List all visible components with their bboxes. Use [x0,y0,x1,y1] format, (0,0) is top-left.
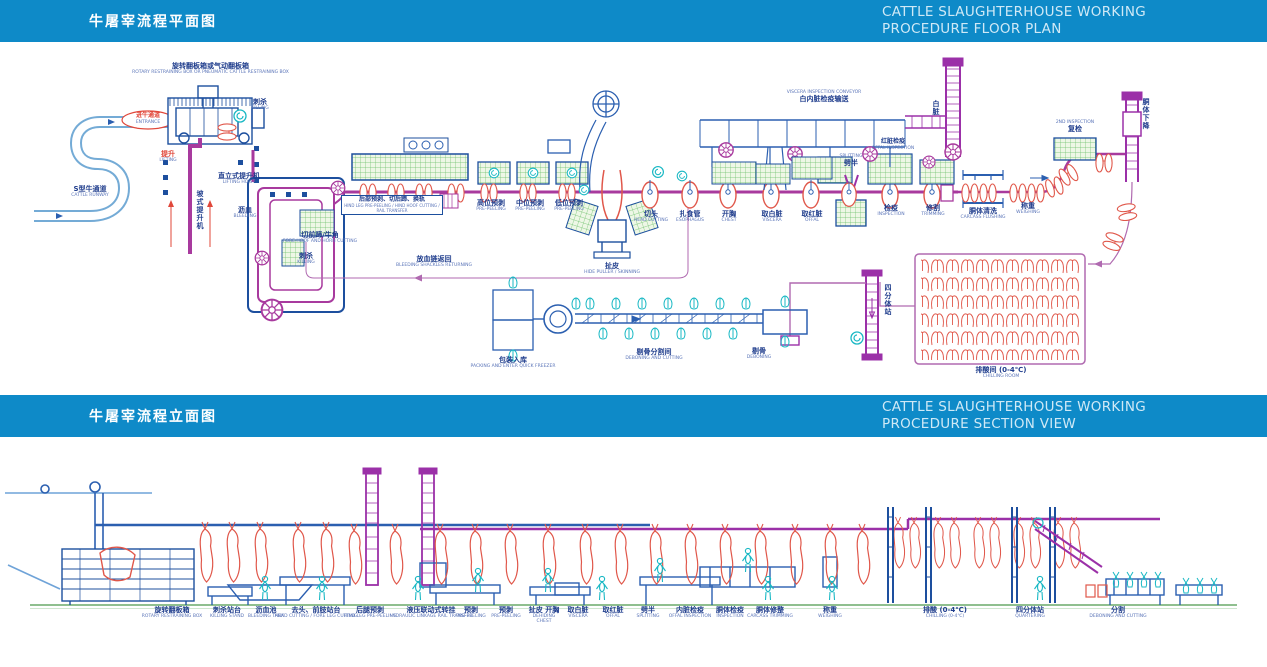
label-splitting: SPLITTING劈半 [828,154,874,167]
section-view-header: 牛屠宰流程立面图 CATTLE SLAUGHTERHOUSE WORKING P… [0,395,1267,437]
label-fore-hoof-horn: 切前蹄/牛角FORE HOOF AND HORN CUTTING [280,231,360,244]
label-sv-quartering: 四分体站QUARTERING [998,606,1062,619]
label-sv-weighing: 称重WEIGHING [803,606,857,619]
label-deboning: 剔骨DEBONING [738,347,780,360]
label-shackle-return: 放血链返回BLEEDING SHACKLES RETURNING [386,255,482,268]
label-offal: 取红脏OFFAL [788,210,836,223]
label-hind-leg-prepeel: 后部预剥、切后蹄、换轨HIND LEG PRE-PEELING / HIND H… [341,195,443,215]
label-hide-puller: 扯皮HIDE PULLER / SKINNING [580,262,644,275]
section-view-title-en: CATTLE SLAUGHTERHOUSE WORKING PROCEDURE … [882,399,1146,433]
label-rotary-restraining-box: 旋转翻板箱或气动翻板箱ROTARY RESTRAINING BOX OR PNE… [118,62,303,75]
label-reinspection: 2ND INSPECTION复检 [1042,120,1108,133]
floor-plan-title-en: CATTLE SLAUGHTERHOUSE WORKING PROCEDURE … [882,4,1146,38]
floor-plan-title-cn: 牛屠宰流程平面图 [89,11,217,31]
label-bleeding: 沥血BLEEDING [224,206,266,219]
label-offal-inspection: 红脏检疫OFFAL INSPECTION [850,139,936,151]
floor-plan-labels: 旋转翻板箱或气动翻板箱ROTARY RESTRAINING BOX OR PNE… [0,42,1267,395]
label-sv-deboning-cutting: 分割DEBONING AND CUTTING [1076,606,1160,619]
label-sv-chilling: 排酸 (0-4℃)CHILLING (0-4℃) [900,606,990,619]
label-viscera-conveyor: VISCERA INSPECTION CONVEYOR白内脏检疫输送 [760,90,888,103]
floor-plan-header: 牛屠宰流程平面图 CATTLE SLAUGHTERHOUSE WORKING P… [0,0,1267,42]
label-incline-hoist: 坡式提升机 [196,190,204,230]
section-view-labels: 旋转翻板箱ROTARY RESTRAINING BOX 刺杀站台KILLING … [0,437,1267,667]
label-white-viscera: 白脏 [932,100,940,116]
label-lifting: 提升LIFTING [150,150,186,163]
label-deboning-room: 剔骨分割间DEBONING AND CUTTING [608,348,700,361]
label-esophagus: 扎食管ESOPHAGUS [668,210,712,223]
label-weighing: 称重WEIGHING [1006,202,1050,215]
label-entrance: 进牛通道ENTRANCE [118,113,178,125]
poster: 牛屠宰流程平面图 CATTLE SLAUGHTERHOUSE WORKING P… [0,0,1267,667]
label-killing-2: 刺杀KILLING [286,252,326,265]
label-chest: 开胸CHEST [708,210,750,223]
label-cattle-runway: S型牛通道CATTLE RUNWAY [50,185,130,198]
label-lifting-hoist: 直立式提升机LIFTING HOIST [200,172,278,185]
section-view-title-cn: 牛屠宰流程立面图 [89,406,217,426]
label-prepeel-low: 低位预剥PRE-PEELING [546,199,592,212]
label-carcass-lowering: 胴体下降 [1142,98,1150,130]
label-killing-1: 刺杀KILLING [240,98,280,111]
label-packing: 包装入库PACKING AND ENTER QUICK FREEZER [458,356,568,369]
label-quartering-station: 四分体站 [884,284,892,316]
label-inspection: 检疫INSPECTION [868,204,914,217]
label-sv-carcass-trimming: 胴体修整CARCASS TRIMMING [738,606,802,619]
label-chilling-room: 排酸间 (0-4℃)CHILLING ROOM [946,366,1056,379]
label-sv-prepeel-2: 预剥PRE-PEELING [484,606,528,619]
